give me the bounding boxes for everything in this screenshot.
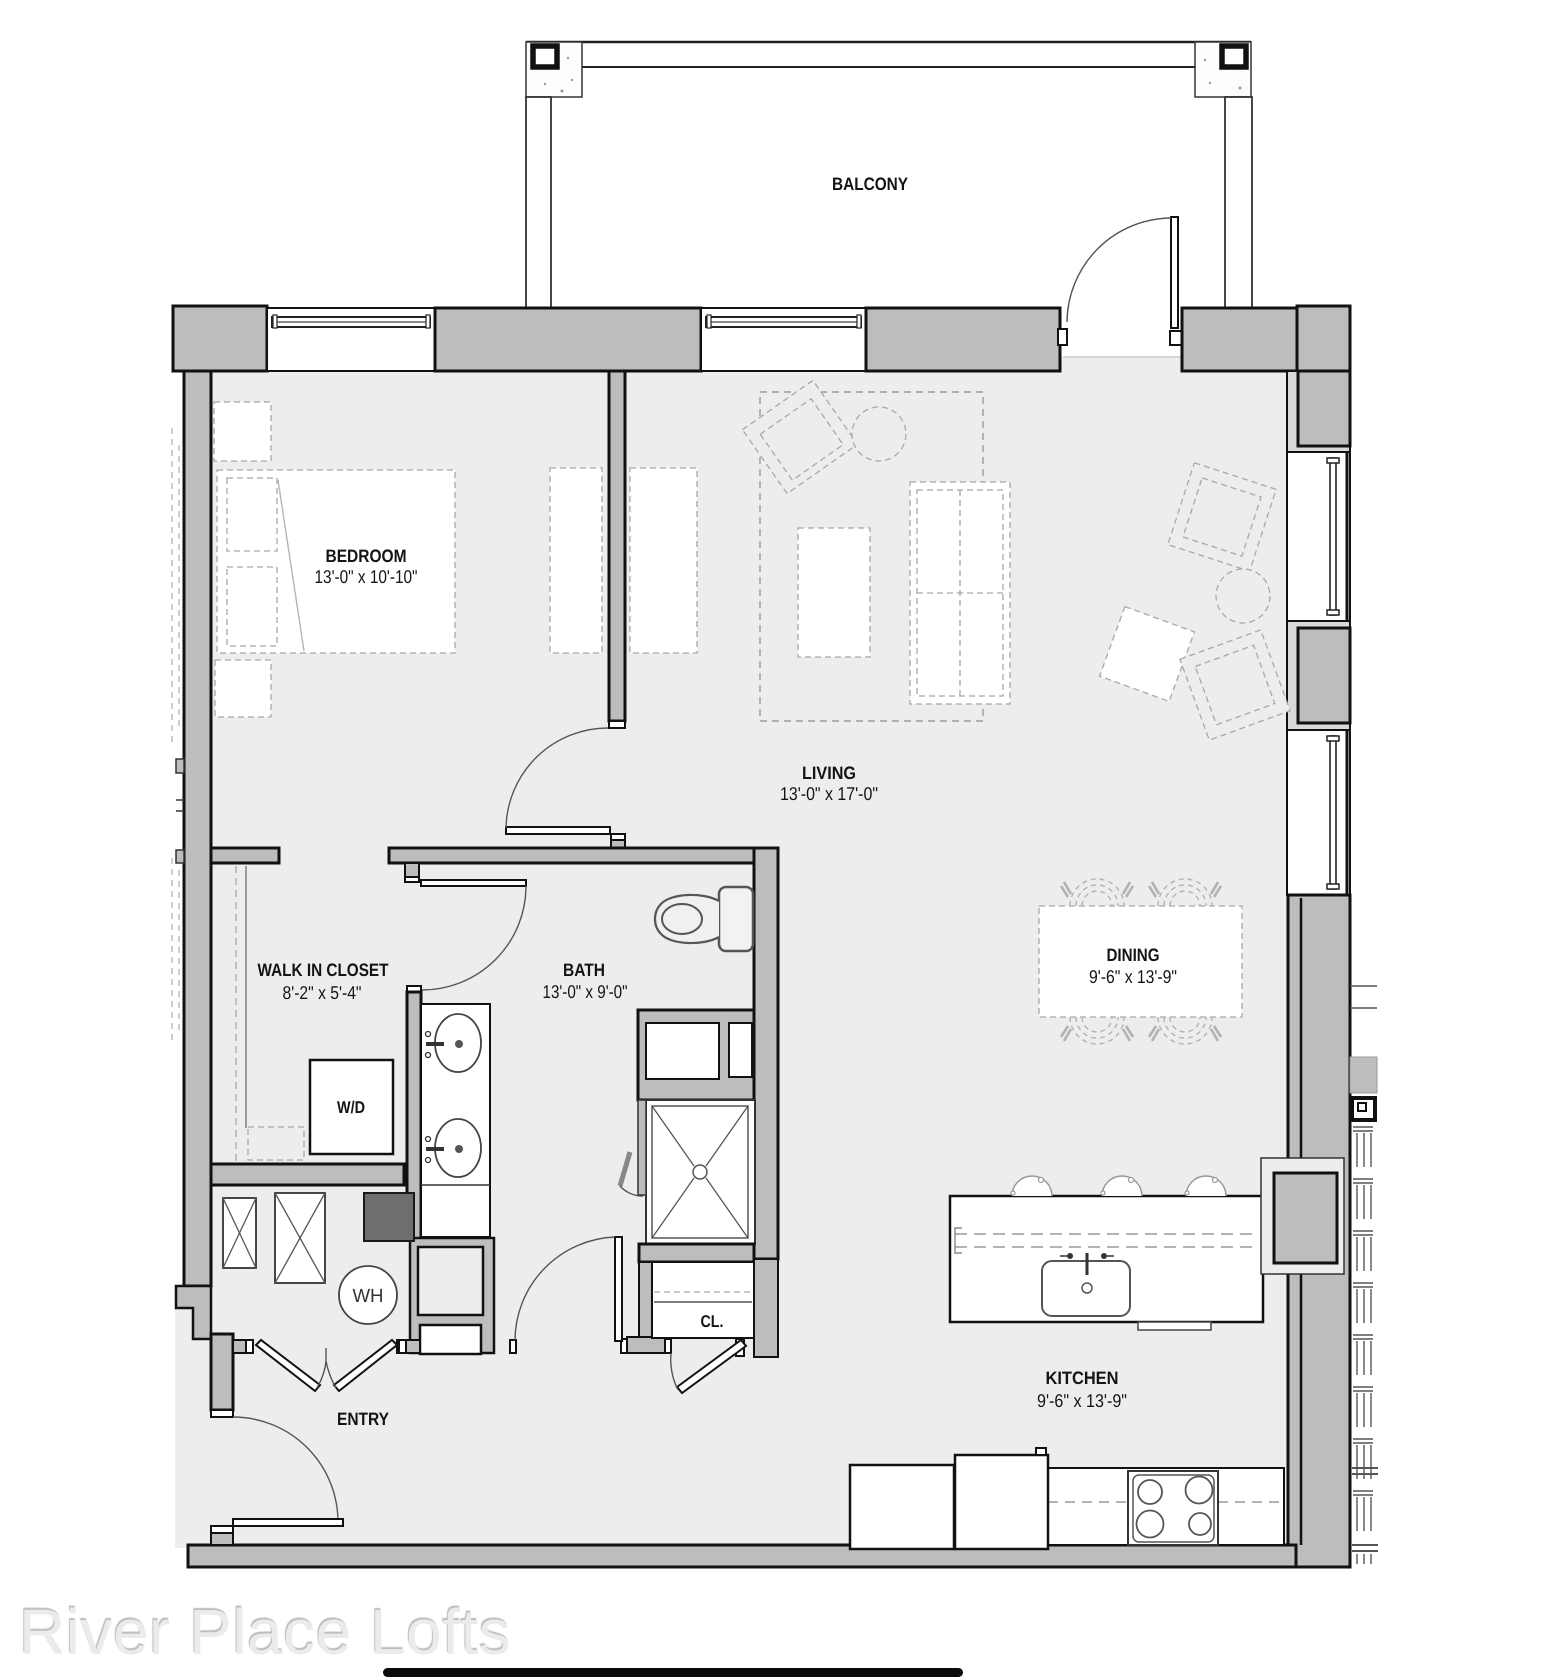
svg-text:WALK IN CLOSET: WALK IN CLOSET — [258, 960, 389, 980]
svg-text:BATH: BATH — [563, 960, 605, 980]
svg-text:WH: WH — [353, 1286, 384, 1307]
svg-text:DINING: DINING — [1107, 945, 1160, 965]
svg-text:CL.: CL. — [701, 1312, 724, 1331]
svg-text:BEDROOM: BEDROOM — [326, 546, 407, 566]
svg-text:BALCONY: BALCONY — [832, 174, 908, 194]
svg-text:9'-6" x 13'-9": 9'-6" x 13'-9" — [1037, 1390, 1127, 1411]
svg-text:W/D: W/D — [337, 1098, 365, 1117]
svg-text:KITCHEN: KITCHEN — [1046, 1368, 1119, 1388]
svg-text:13'-0" x 17'-0": 13'-0" x 17'-0" — [780, 783, 878, 804]
svg-text:ENTRY: ENTRY — [337, 1409, 389, 1429]
svg-text:8'-2" x 5'-4": 8'-2" x 5'-4" — [283, 982, 362, 1003]
svg-text:13'-0" x 9'-0": 13'-0" x 9'-0" — [543, 981, 628, 1002]
svg-text:13'-0" x 10'-10": 13'-0" x 10'-10" — [315, 566, 418, 587]
svg-text:9'-6" x 13'-9": 9'-6" x 13'-9" — [1089, 966, 1177, 987]
svg-text:LIVING: LIVING — [802, 763, 856, 783]
